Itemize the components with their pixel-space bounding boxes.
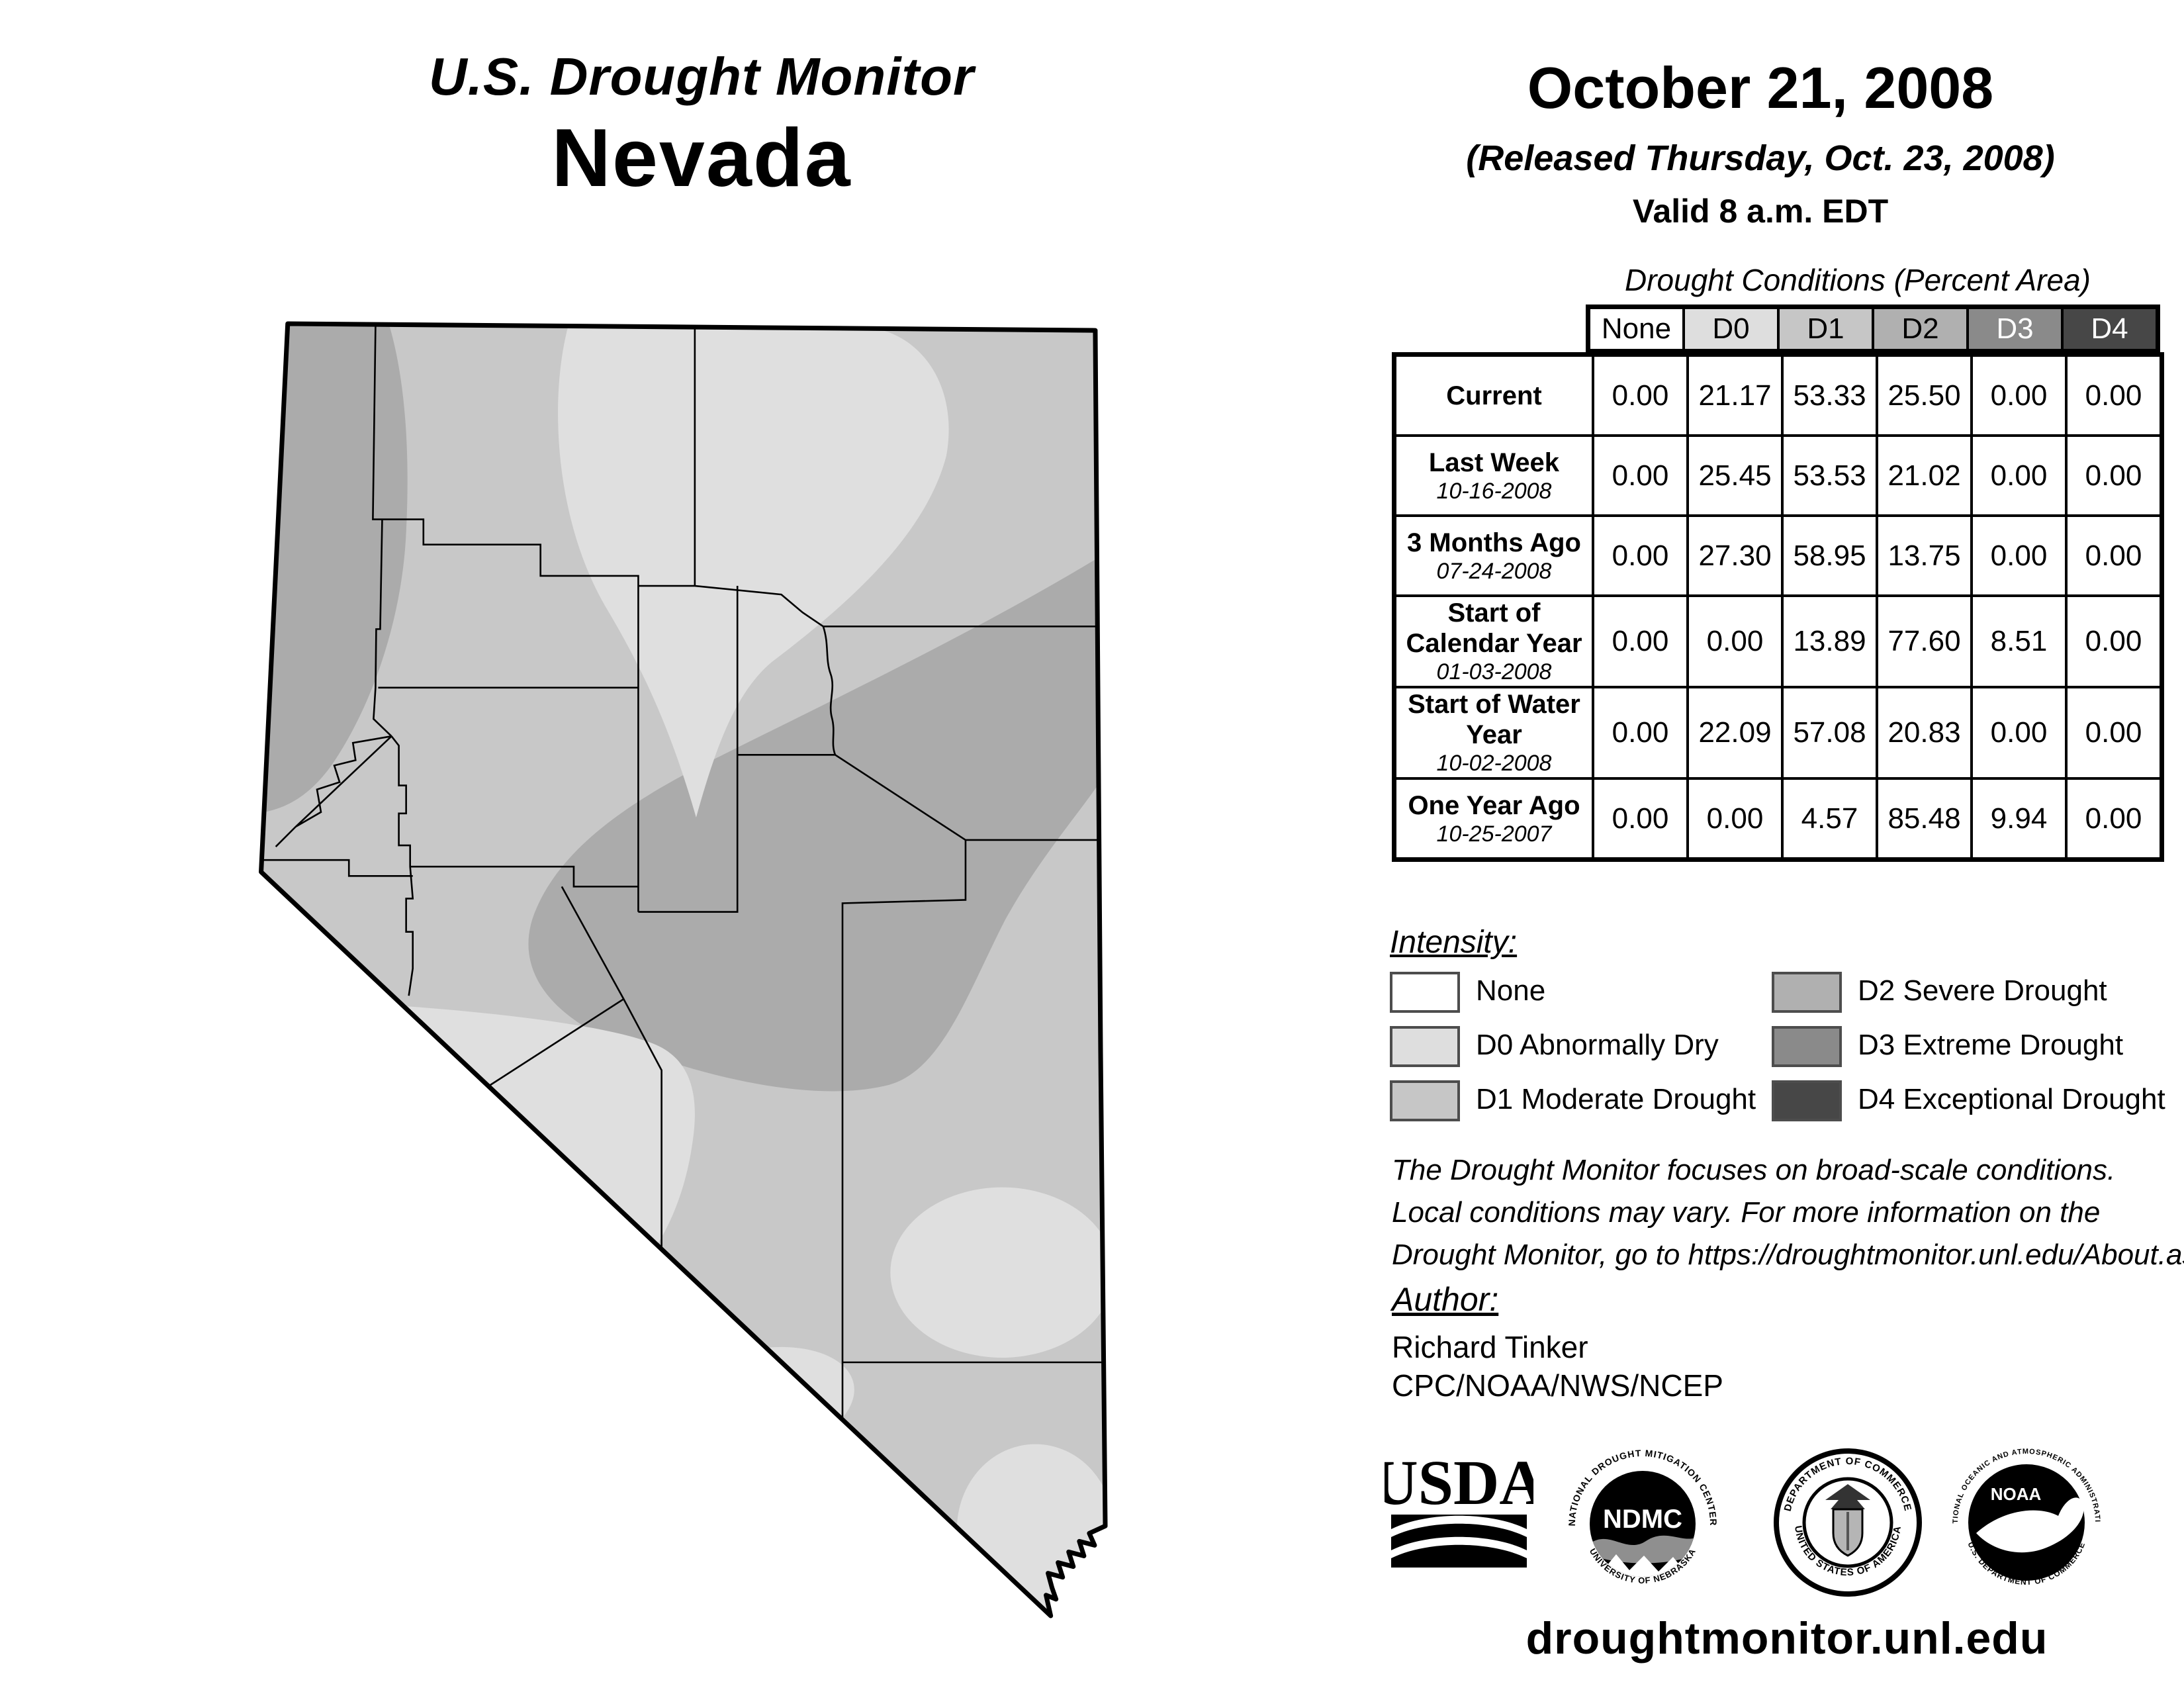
cell-value: 8.51 <box>1972 596 2066 687</box>
cell-value: 0.00 <box>1972 436 2066 516</box>
legend-label: D4 Exceptional Drought <box>1858 1083 2165 1116</box>
cell-value: 57.08 <box>1782 687 1877 778</box>
column-header-none: None <box>1588 307 1684 352</box>
noaa-logo: NATIONAL OCEANIC AND ATMOSPHERIC ADMINIS… <box>1947 1443 2106 1602</box>
ndmc-logo: NATIONAL DROUGHT MITIGATION CENTER NDMC … <box>1563 1443 1722 1602</box>
disclaimer-line: The Drought Monitor focuses on broad-sca… <box>1392 1149 2184 1192</box>
column-header-d4: D4 <box>2062 307 2158 352</box>
cell-value: 13.89 <box>1782 596 1877 687</box>
legend-label: D0 Abnormally Dry <box>1476 1029 1719 1062</box>
cell-value: 53.33 <box>1782 355 1877 436</box>
cell-value: 0.00 <box>1593 778 1688 860</box>
cell-value: 0.00 <box>2066 355 2162 436</box>
legend-swatch-d2 <box>1772 972 1842 1013</box>
disclaimer: The Drought Monitor focuses on broad-sca… <box>1392 1149 2184 1276</box>
row-label: Start of Calendar Year <box>1397 598 1591 659</box>
cell-value: 0.00 <box>1593 687 1688 778</box>
legend-swatch-d3 <box>1772 1026 1842 1067</box>
cell-value: 20.83 <box>1877 687 1972 778</box>
site-url: droughtmonitor.unl.edu <box>1456 1613 2118 1664</box>
table-row: Start of Calendar Year01-03-2008 0.00 0.… <box>1394 596 2162 687</box>
cell-value: 0.00 <box>1688 596 1782 687</box>
cell-value: 85.48 <box>1877 778 1972 860</box>
author-heading: Author: <box>1392 1280 1498 1319</box>
cell-value: 9.94 <box>1972 778 2066 860</box>
map-region-d0-lincoln <box>890 1188 1114 1358</box>
valid-time: Valid 8 a.m. EDT <box>1390 192 2131 230</box>
column-header-d3: D3 <box>1968 307 2062 352</box>
row-date: 10-02-2008 <box>1397 750 1591 776</box>
column-header-d2: D2 <box>1873 307 1968 352</box>
legend-swatch-d0 <box>1390 1026 1460 1067</box>
row-date: 07-24-2008 <box>1397 558 1591 585</box>
cell-value: 0.00 <box>2066 596 2162 687</box>
cell-value: 0.00 <box>1972 516 2066 596</box>
column-header-d1: D1 <box>1778 307 1873 352</box>
department-of-commerce-seal: DEPARTMENT OF COMMERCE UNITED STATES OF … <box>1768 1443 1927 1602</box>
cell-value: 0.00 <box>1972 687 2066 778</box>
disclaimer-line: Drought Monitor, go to https://droughtmo… <box>1392 1234 2184 1276</box>
disclaimer-line: Local conditions may vary. For more info… <box>1392 1192 2184 1234</box>
row-label: 3 Months Ago <box>1397 528 1591 558</box>
released-date: (Released Thursday, Oct. 23, 2008) <box>1390 138 2131 179</box>
legend-swatch-none <box>1390 972 1460 1013</box>
legend-swatch-d4 <box>1772 1080 1842 1121</box>
legend-label: D3 Extreme Drought <box>1858 1029 2123 1062</box>
cell-value: 0.00 <box>2066 516 2162 596</box>
drought-table-header: None D0 D1 D2 D3 D4 <box>1586 305 2160 353</box>
report-title: U.S. Drought Monitor <box>255 46 1148 107</box>
column-header-d0: D0 <box>1684 307 1778 352</box>
legend-label: D1 Moderate Drought <box>1476 1083 1756 1116</box>
table-row: Start of Water Year10-02-2008 0.00 22.09… <box>1394 687 2162 778</box>
cell-value: 21.02 <box>1877 436 1972 516</box>
cell-value: 0.00 <box>1972 355 2066 436</box>
cell-value: 4.57 <box>1782 778 1877 860</box>
nevada-drought-map <box>255 320 1168 1624</box>
row-date: 01-03-2008 <box>1397 659 1591 685</box>
cell-value: 77.60 <box>1877 596 1972 687</box>
table-row: 3 Months Ago07-24-2008 0.00 27.30 58.95 … <box>1394 516 2162 596</box>
row-label: Current <box>1397 381 1591 411</box>
title-block: U.S. Drought Monitor Nevada <box>255 46 1148 205</box>
state-name-title: Nevada <box>255 111 1148 205</box>
map-region-d0-southwest <box>334 1004 695 1305</box>
cell-value: 0.00 <box>1688 778 1782 860</box>
cell-value: 0.00 <box>2066 687 2162 778</box>
row-label: One Year Ago <box>1397 790 1591 821</box>
table-row: One Year Ago10-25-2007 0.00 0.00 4.57 85… <box>1394 778 2162 860</box>
legend-label: None <box>1476 974 1545 1008</box>
drought-table-body: Current 0.00 21.17 53.33 25.50 0.00 0.00… <box>1392 352 2164 862</box>
row-label: Last Week <box>1397 447 1591 478</box>
cell-value: 13.75 <box>1877 516 1972 596</box>
usda-logo: USDA <box>1385 1443 1533 1575</box>
date-block: October 21, 2008 (Released Thursday, Oct… <box>1390 54 2131 230</box>
legend-swatch-d1 <box>1390 1080 1460 1121</box>
row-date: 10-25-2007 <box>1397 821 1591 847</box>
map-region-d0-south-tip <box>957 1444 1114 1615</box>
cell-value: 25.45 <box>1688 436 1782 516</box>
cell-value: 0.00 <box>1593 596 1688 687</box>
cell-value: 53.53 <box>1782 436 1877 516</box>
cell-value: 21.17 <box>1688 355 1782 436</box>
cell-value: 0.00 <box>1593 355 1688 436</box>
drought-monitor-report: U.S. Drought Monitor Nevada October 21, … <box>0 0 2184 1688</box>
usda-logo-text: USDA <box>1385 1447 1533 1518</box>
author-name: Richard Tinker <box>1392 1329 1588 1365</box>
cell-value: 0.00 <box>1593 436 1688 516</box>
cell-value: 0.00 <box>2066 778 2162 860</box>
cell-value: 25.50 <box>1877 355 1972 436</box>
cell-value: 0.00 <box>1593 516 1688 596</box>
table-row: Current 0.00 21.17 53.33 25.50 0.00 0.00 <box>1394 355 2162 436</box>
legend-label: D2 Severe Drought <box>1858 974 2107 1008</box>
cell-value: 0.00 <box>2066 436 2162 516</box>
legend-heading: Intensity: <box>1390 924 1517 961</box>
report-date: October 21, 2008 <box>1390 54 2131 122</box>
row-date: 10-16-2008 <box>1397 478 1591 504</box>
cell-value: 27.30 <box>1688 516 1782 596</box>
author-org: CPC/NOAA/NWS/NCEP <box>1392 1368 1723 1403</box>
cell-value: 58.95 <box>1782 516 1877 596</box>
ndmc-center-text: NDMC <box>1603 1505 1682 1534</box>
noaa-center-text: NOAA <box>1991 1484 2042 1504</box>
row-label: Start of Water Year <box>1397 689 1591 750</box>
table-row: Last Week10-16-2008 0.00 25.45 53.53 21.… <box>1394 436 2162 516</box>
cell-value: 22.09 <box>1688 687 1782 778</box>
table-caption: Drought Conditions (Percent Area) <box>1586 262 2130 298</box>
